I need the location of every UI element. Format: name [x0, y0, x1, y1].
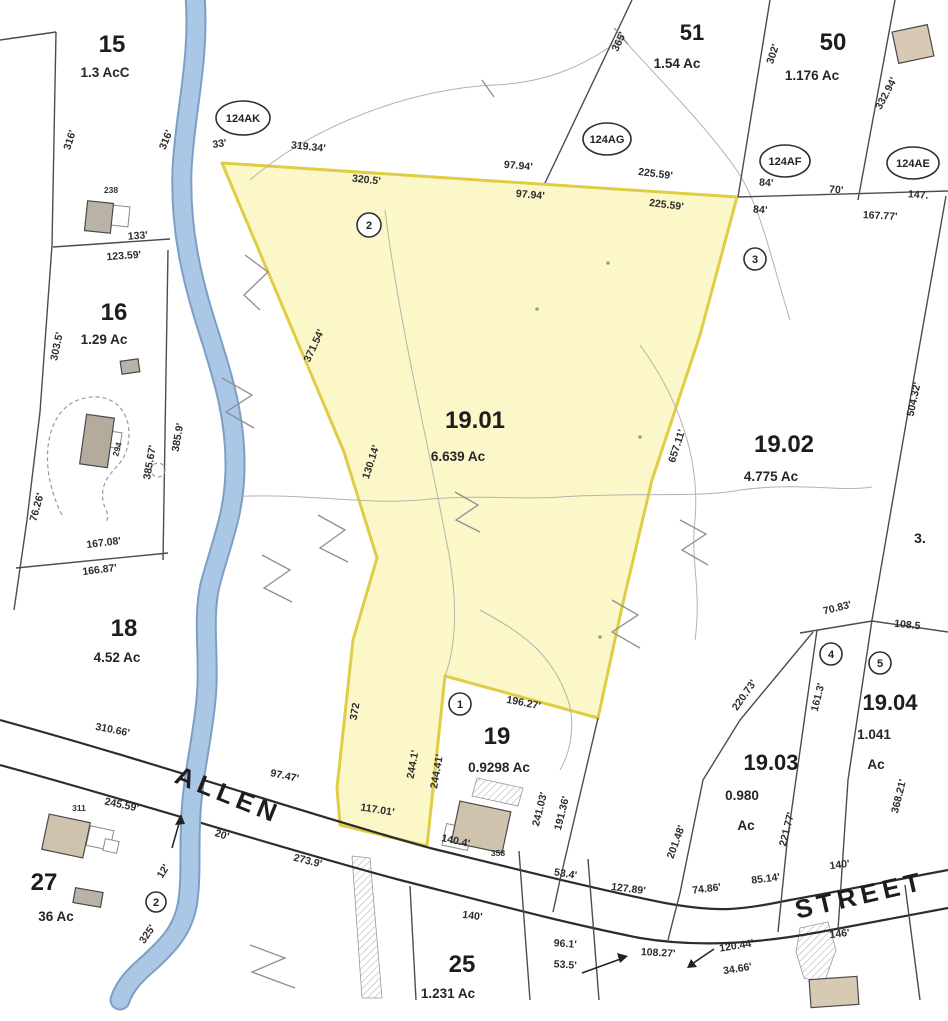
dimension-label: 368.21': [889, 778, 909, 814]
parcel-area-label: 0.980: [725, 788, 759, 803]
west-lot-line: [14, 32, 56, 610]
lot1903-1904-line: [778, 630, 817, 932]
garage-lot15: [111, 205, 130, 227]
deck2-lot27: [103, 839, 119, 854]
dimension-label: 108.27': [641, 946, 676, 960]
dimension-label: 84': [753, 204, 768, 217]
dimension-label: 97.94': [503, 159, 533, 173]
lot51-west-line: [545, 0, 632, 183]
driveway-lot19: [472, 778, 523, 806]
dimension-label: 657.11': [666, 428, 688, 464]
survey-dot: [598, 635, 602, 639]
building-lot16: [80, 414, 115, 467]
parcel-id-19: 19: [484, 723, 511, 750]
parcel-id-15: 15: [99, 31, 126, 58]
dimension-label: 504.32': [905, 381, 924, 417]
dimension-label: 146': [829, 927, 850, 941]
building-northeast: [892, 25, 934, 64]
ref-circle-label: 2: [153, 897, 159, 909]
lot25-west-line: [410, 886, 416, 1000]
ref-oval-label: 124AK: [226, 113, 260, 125]
contour-tick: [482, 80, 494, 97]
dimension-label: 140': [829, 858, 850, 872]
dimension-label: 167.77': [863, 209, 898, 223]
junction-line: [800, 621, 948, 633]
dimension-label: 161.3': [809, 682, 828, 713]
parcel-area-label: 4.52 Ac: [94, 650, 141, 665]
parcel-id-19.03: 19.03: [743, 750, 798, 775]
dimension-label: 97.94': [515, 188, 545, 202]
house-number: 311: [72, 803, 86, 813]
ref-circle-label: 5: [877, 658, 883, 670]
parcel-area-label: 1.231 Ac: [421, 986, 476, 1001]
parcel-area-label: 1.041: [857, 727, 891, 742]
lot15-16-line: [53, 239, 170, 247]
dimension-label: 53.5': [553, 958, 577, 972]
dimension-label: 108.5: [894, 618, 922, 633]
dimension-label: 70.83': [822, 599, 853, 618]
house-number: 358: [491, 848, 505, 858]
building-southeast: [809, 976, 859, 1007]
parcel-id-16: 16: [101, 299, 128, 326]
ref-oval-label: 124AF: [768, 156, 801, 168]
lot16-east-line: [163, 250, 168, 560]
parcel-id-19.01: 19.01: [445, 407, 505, 434]
lot1903-west-line: [668, 632, 813, 940]
dimension-label: 191.36': [552, 795, 572, 831]
dimension-label: 147.: [908, 188, 929, 201]
dimension-label: 123.59': [106, 249, 141, 263]
stream-mark: [262, 555, 292, 602]
parcel-area-label: 1.54 Ac: [654, 56, 701, 71]
ref-oval-label: 124AG: [590, 134, 625, 146]
ref-circle-label: 1: [457, 699, 463, 711]
dimension-label: 127.89': [610, 881, 646, 897]
dimension-label: 303.5': [48, 331, 66, 362]
dimension-label: 20': [213, 827, 230, 843]
shed-lot27: [73, 888, 103, 908]
dimension-label: 85.14': [751, 871, 781, 886]
dimension-label: 332.94': [873, 75, 900, 111]
parcel-area-label: 1.176 Ac: [785, 68, 840, 83]
dimension-label: 84': [759, 177, 774, 190]
southeast-lot-line: [905, 885, 920, 1000]
dimension-label: 166.87': [82, 562, 118, 578]
dimension-label: 12': [155, 862, 173, 880]
dimension-label: 225.59': [637, 166, 673, 182]
parcel-id-25: 25: [449, 951, 476, 978]
house-number: 238: [104, 185, 118, 195]
parcel-id-18: 18: [111, 615, 138, 642]
contour-north-arc: [250, 38, 622, 180]
lot25-east-line: [519, 851, 530, 1000]
dimension-label: 245.59': [103, 796, 139, 815]
dirt-drive-strip: [352, 856, 382, 998]
parcel-id-50: 50: [820, 29, 847, 56]
tax-map-svg[interactable]: 124AK124AG124AF124AE231245316'316'33'319…: [0, 0, 948, 1021]
parcel-area-label: Ac: [867, 757, 885, 772]
dimension-label: 120.44': [718, 937, 754, 954]
building-lot27: [42, 814, 91, 858]
dimension-label: 74.86': [692, 881, 722, 896]
dimension-label: 310.66': [94, 721, 130, 739]
parcel-19-01-highlight[interactable]: [222, 163, 737, 846]
parcel-area-label: 36 Ac: [38, 909, 74, 924]
ref-circle-label: 4: [828, 649, 835, 661]
parcel-area-label: Ac: [737, 818, 755, 833]
survey-dot: [638, 435, 642, 439]
dimension-label: 70': [829, 184, 844, 197]
parcel-map[interactable]: 124AK124AG124AF124AE231245316'316'33'319…: [0, 0, 948, 1021]
parcel-id-19.04: 19.04: [862, 690, 918, 715]
survey-dot: [606, 261, 610, 265]
parcel-id-51: 51: [680, 20, 704, 45]
shed-lot16: [120, 359, 140, 374]
parcel-area-label: 0.9298 Ac: [468, 760, 530, 775]
dimension-label: 385.67': [141, 444, 159, 480]
dimension-label: 97.47': [269, 767, 300, 785]
dimension-label: 96.1': [553, 937, 577, 951]
parcel-id-19.02: 19.02: [754, 431, 814, 458]
ref-oval-label: 124AE: [896, 158, 930, 170]
dimension-label: 201.48': [665, 824, 688, 861]
dimension-label: 133': [127, 229, 148, 242]
dimension-label: 140': [462, 909, 483, 923]
parcel-area-label: 1.29 Ac: [81, 332, 128, 347]
dimension-label: 241.03': [530, 791, 550, 827]
dimension-label: 273.9': [292, 852, 323, 871]
ref-circle-label: 3: [752, 254, 758, 266]
dimension-label: 167.08': [86, 535, 122, 551]
dim-arrow-head: [617, 953, 628, 963]
stream-mark: [250, 945, 295, 988]
dimension-label: 319.34': [290, 139, 326, 155]
dimension-label: 220.73': [730, 678, 760, 713]
survey-dot: [535, 307, 539, 311]
ref-circle-label: 2: [366, 220, 372, 232]
parcel-area-label: 6.639 Ac: [431, 449, 486, 464]
dimension-label: 302': [764, 43, 782, 66]
dimension-label: 33': [212, 137, 228, 151]
dimension-label: 316': [61, 129, 79, 152]
stream-mark: [318, 515, 348, 562]
parcel-id-27: 27: [31, 869, 58, 896]
dim-arrow-head: [687, 959, 697, 968]
building-lot15: [85, 201, 114, 234]
parcel-area-label: 4.775 Ac: [744, 469, 799, 484]
parcel-id-3.: 3.: [914, 530, 926, 546]
dimension-label: 221.77': [777, 811, 797, 847]
map-edge-corner: [0, 32, 56, 40]
parcel-area-label: 1.3 AcC: [80, 65, 129, 80]
dimension-label: 385.9': [170, 422, 187, 452]
dimension-label: 34.66': [722, 961, 752, 977]
dimension-label: 316': [157, 128, 176, 151]
